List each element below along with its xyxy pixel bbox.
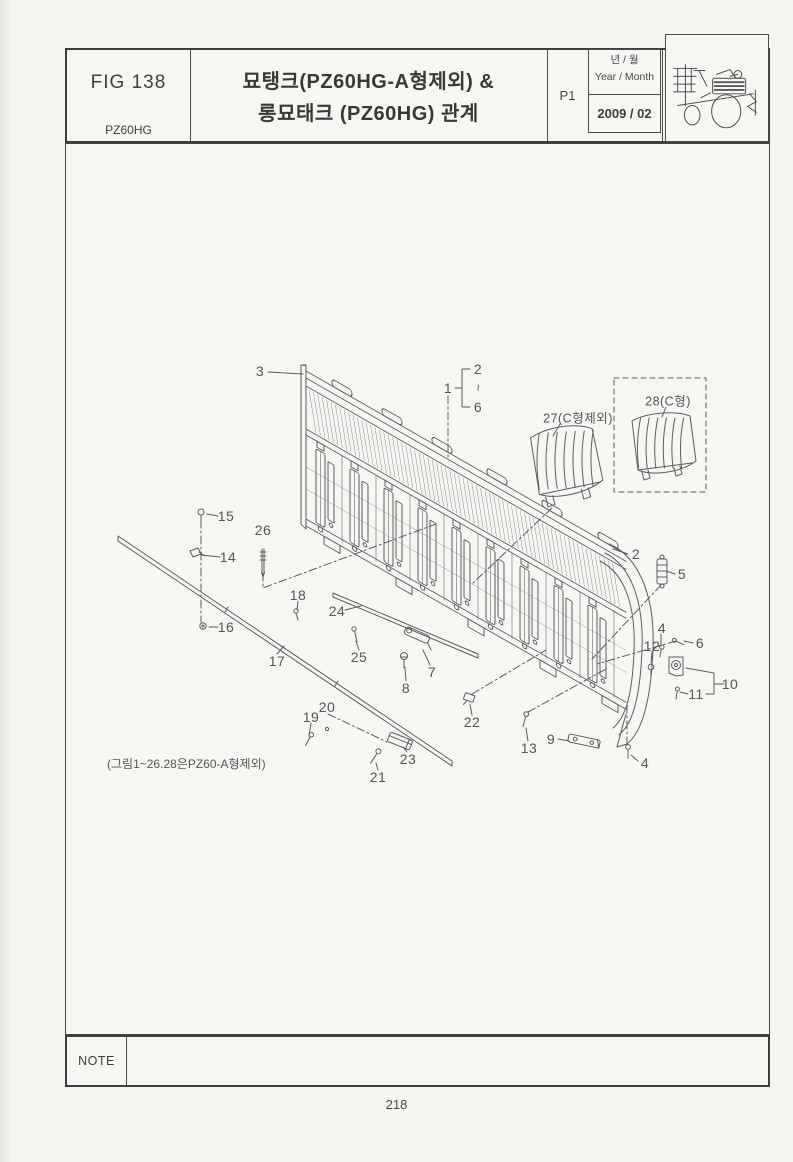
part-22-clip <box>462 693 476 708</box>
part-8-bolt <box>401 653 408 669</box>
grate-part-27 <box>530 424 604 507</box>
seedling-tank <box>301 361 626 717</box>
part-12-bolt <box>648 664 654 676</box>
part-21-screw <box>369 748 382 765</box>
note-label: NOTE <box>67 1037 127 1085</box>
part-20-pin <box>325 727 328 730</box>
part-10-hinge <box>669 657 683 676</box>
part-25-screw <box>352 627 357 642</box>
catalog-page: FIG 138 PZ60HG 묘탱크(PZ60HG-A형제외) & 롱묘태크 (… <box>0 0 793 1162</box>
part-13-screw <box>521 711 530 727</box>
part-11-screw <box>674 687 680 699</box>
tank-inner-lines <box>306 467 626 672</box>
note-box: NOTE <box>65 1035 770 1087</box>
leader-lines <box>201 372 693 770</box>
grate-27-slats <box>535 430 596 489</box>
figure-caption: (그림1~26.28은PZ60-A형제외) <box>107 755 266 772</box>
grate-part-28 <box>632 413 696 480</box>
part-5-slotted-plate <box>657 555 667 588</box>
group-10-bracket <box>686 668 724 694</box>
page-number: 218 <box>0 1097 793 1112</box>
part-16-washer <box>200 623 206 629</box>
tank-clips <box>332 379 618 550</box>
part-4-bottom-screw <box>626 745 631 758</box>
group-1-bracket <box>462 369 470 407</box>
part-15-pin <box>198 509 204 521</box>
grate-28-slats <box>637 418 683 468</box>
part-18-screw <box>294 609 298 620</box>
projection-lines <box>201 396 676 745</box>
part-9-bracket <box>568 734 601 748</box>
exploded-parts-drawing <box>0 0 793 1162</box>
rail-part-17 <box>118 536 452 766</box>
part-23-slider <box>387 732 413 750</box>
tank-gate-assemblies <box>316 441 614 700</box>
